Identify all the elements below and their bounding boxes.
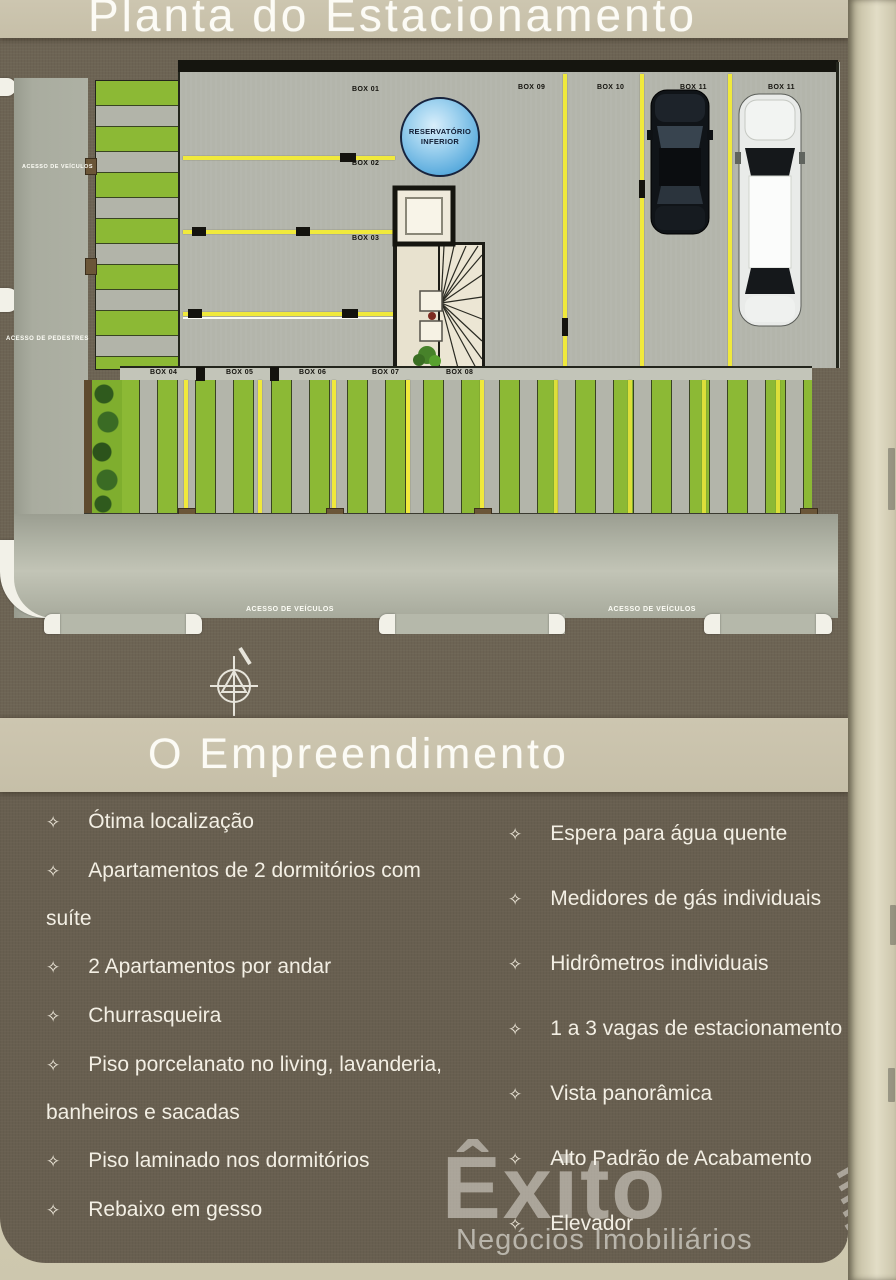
top-title-band: Planta do Estacionamento [0, 0, 848, 38]
parking-line-white [183, 317, 401, 319]
curb-piece [816, 614, 832, 634]
feature-text: Rebaixo em gesso [88, 1198, 262, 1221]
brochure-page: Planta do Estacionamento RESERVATÓRIO IN… [0, 0, 848, 1263]
wheel-stop [192, 227, 206, 236]
access-label: ACESSO DE PEDESTRES [6, 336, 89, 342]
feature-item: ✧1 a 3 vagas de estacionamento [508, 1005, 848, 1053]
landscaping-trees [84, 380, 122, 516]
feature-text: Espera para água quente [550, 822, 787, 845]
wheel-stop [270, 367, 279, 381]
feature-item: ✧Piso porcelanato no living, lavanderia,… [46, 1041, 454, 1136]
parking-line [332, 380, 336, 513]
wheel-stop [296, 227, 310, 236]
driveway-cut [57, 614, 190, 634]
parking-line [184, 380, 188, 513]
access-label: ACESSO DE VEÍCULOS [608, 606, 696, 613]
parking-line [258, 380, 262, 513]
diamond-bullet-icon: ✧ [508, 1085, 522, 1104]
plan-post [85, 258, 97, 275]
scan-artifact [888, 448, 895, 510]
diamond-bullet-icon: ✧ [508, 825, 522, 844]
green-striped-spots-bottom [120, 380, 812, 516]
scan-page-edge-right [848, 0, 896, 1280]
scan-artifact [888, 1068, 895, 1102]
white-car [733, 90, 807, 330]
feature-text: 2 Apartamentos por andar [88, 955, 331, 978]
parking-line [628, 380, 632, 513]
driveway-apron [14, 514, 838, 618]
feature-item: ✧Piso laminado nos dormitórios [46, 1137, 454, 1185]
feature-item: ✧Hidrômetros individuais [508, 940, 848, 988]
feature-text: Piso porcelanato no living, lavanderia, … [46, 1053, 442, 1124]
diamond-bullet-icon: ✧ [46, 1056, 60, 1075]
feature-text: Vista panorâmica [550, 1082, 712, 1105]
access-label: ACESSO DE VEÍCULOS [246, 606, 334, 613]
exito-logo: Êxito Negócios Imobiliários [442, 1148, 842, 1258]
feature-text: Churrasqueira [88, 1004, 221, 1027]
diamond-bullet-icon: ✧ [46, 958, 60, 977]
curb-piece [186, 614, 202, 634]
box-label: BOX 06 [299, 369, 326, 376]
page-title: Planta do Estacionamento [88, 0, 697, 38]
north-arrow-icon [198, 644, 270, 716]
parking-line [728, 74, 732, 366]
reservoir-label-1: RESERVATÓRIO [409, 127, 471, 137]
parking-line [554, 380, 558, 513]
section-title: O Empreendimento [148, 730, 569, 779]
green-striped-spots-left [95, 80, 185, 370]
feature-text: Hidrômetros individuais [550, 952, 768, 975]
logo-wordmark: Êxito [442, 1148, 842, 1228]
feature-item: ✧Espera para água quente [508, 810, 848, 858]
reservoir-label-2: INFERIOR [421, 137, 459, 147]
parking-line [183, 312, 401, 316]
feature-text: Apartamentos de 2 dormitórios com suíte [46, 859, 421, 930]
feature-item: ✧Apartamentos de 2 dormitórios com suíte [46, 847, 454, 942]
parking-line [776, 380, 780, 513]
box-label: BOX 08 [446, 369, 473, 376]
feature-item: ✧Vista panorâmica [508, 1070, 848, 1118]
diamond-bullet-icon: ✧ [46, 1007, 60, 1026]
parking-line [702, 380, 706, 513]
driveway-cut [720, 614, 818, 634]
diamond-bullet-icon: ✧ [508, 890, 522, 909]
box-label: BOX 02 [352, 160, 379, 167]
feature-item: ✧2 Apartamentos por andar [46, 943, 454, 991]
access-label: ACESSO DE VEÍCULOS [22, 164, 93, 170]
chevrons-icon [834, 1148, 848, 1263]
wheel-stop [342, 309, 358, 318]
logo-tagline: Negócios Imobiliários [456, 1224, 842, 1257]
driveway-cut [395, 614, 565, 634]
curb-piece [549, 614, 565, 634]
features-left-column: ✧Ótima localização✧Apartamentos de 2 dor… [46, 798, 454, 1235]
feature-item: ✧Rebaixo em gesso [46, 1186, 454, 1234]
parking-line [640, 74, 644, 366]
box-label: BOX 01 [352, 86, 379, 93]
diamond-bullet-icon: ✧ [46, 1201, 60, 1220]
parking-line [183, 230, 398, 234]
feature-text: Ótima localização [88, 810, 254, 833]
box-label: BOX 07 [372, 369, 399, 376]
diamond-bullet-icon: ✧ [46, 813, 60, 832]
diamond-bullet-icon: ✧ [508, 1020, 522, 1039]
diamond-bullet-icon: ✧ [508, 955, 522, 974]
feature-text: 1 a 3 vagas de estacionamento [550, 1017, 842, 1040]
scan-artifact [890, 905, 896, 945]
box-label: BOX 11 [680, 84, 707, 91]
wheel-stop [562, 318, 568, 336]
box-label: BOX 11 [768, 84, 795, 91]
feature-item: ✧Ótima localização [46, 798, 454, 846]
feature-text: Medidores de gás individuais [550, 887, 821, 910]
box-label: BOX 03 [352, 235, 379, 242]
curb-piece [379, 614, 395, 634]
box-label: BOX 09 [518, 84, 545, 91]
box-label: BOX 04 [150, 369, 177, 376]
box-label: BOX 10 [597, 84, 624, 91]
garage-right-wall [836, 62, 839, 368]
garage-top-wall [178, 60, 838, 72]
feature-item: ✧Medidores de gás individuais [508, 875, 848, 923]
diamond-bullet-icon: ✧ [46, 1152, 60, 1171]
diamond-bullet-icon: ✧ [46, 862, 60, 881]
dark-car [645, 86, 715, 238]
section-title-band: O Empreendimento [0, 718, 848, 792]
wheel-stop [188, 309, 202, 318]
curb-piece [44, 614, 60, 634]
parking-line [480, 380, 484, 513]
feature-item: ✧Churrasqueira [46, 992, 454, 1040]
stair-elevator-core [392, 185, 487, 373]
lower-reservoir: RESERVATÓRIO INFERIOR [400, 97, 480, 177]
curb-piece [704, 614, 720, 634]
parking-line [406, 380, 410, 513]
feature-text: Piso laminado nos dormitórios [88, 1149, 369, 1172]
box-label: BOX 05 [226, 369, 253, 376]
wheel-stop [196, 367, 205, 381]
